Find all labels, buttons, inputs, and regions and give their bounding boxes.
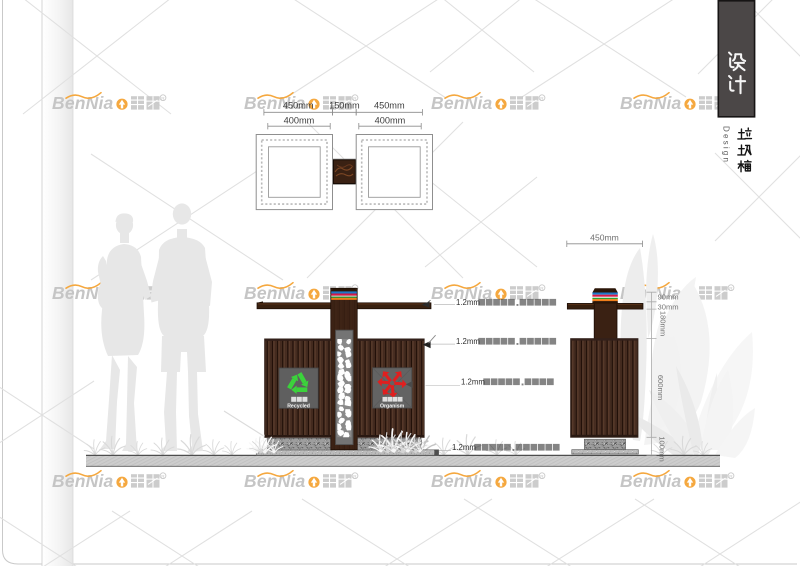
svg-text:600mm: 600mm	[656, 375, 665, 400]
svg-text:Recycled: Recycled	[287, 403, 310, 409]
svg-text:180mm: 180mm	[659, 311, 668, 336]
svg-text:450mm: 450mm	[374, 101, 405, 111]
svg-text:Design: Design	[722, 126, 731, 164]
svg-text:400mm: 400mm	[284, 115, 315, 125]
svg-text:1.2mm: 1.2mm	[461, 378, 485, 387]
svg-text:90mm: 90mm	[658, 293, 679, 302]
svg-text:450mm: 450mm	[283, 101, 314, 111]
svg-text:400mm: 400mm	[375, 115, 406, 125]
svg-text:100mm: 100mm	[658, 436, 667, 461]
svg-text:450mm: 450mm	[590, 233, 619, 243]
svg-text:1.2mm: 1.2mm	[456, 298, 480, 307]
svg-text:150mm: 150mm	[329, 101, 360, 111]
svg-text:Organism: Organism	[380, 403, 405, 409]
svg-text:1.2mm: 1.2mm	[456, 337, 480, 346]
svg-text:1.2mm: 1.2mm	[452, 443, 476, 452]
